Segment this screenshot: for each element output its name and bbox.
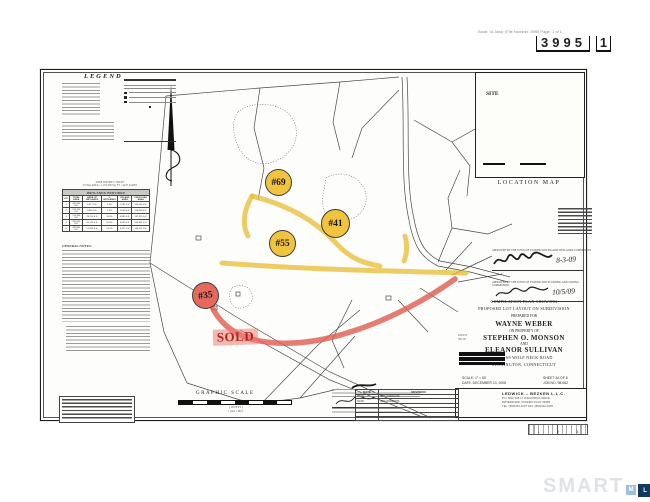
job-number: JOB NO. 98-062 [543,381,568,385]
graphic-scale-units: ( IN FEET ) 1 inch = 80 ft. [196,406,276,414]
legend-title: LEGEND [84,73,123,80]
legend-symbol-icon [124,101,127,104]
general-notes-text [62,250,150,322]
general-notes-title: GENERAL NOTES: [62,244,92,248]
approval-line-wetlands: APPROVED BY THE TOWN OF STONINGTON INLAN… [492,249,592,252]
received-stamp [558,208,592,234]
file-number-suffix: 1 [596,36,611,52]
lot-badge-41: #41 [321,209,350,238]
legend-entries [62,83,100,117]
table-row: 5192,861 S.F.27,850 S.F.14.4%4,957 S.F.1… [63,226,150,232]
graphic-scale-bar [178,400,292,405]
table-row [356,416,459,420]
approval-date-planning: 10/5/09 [552,286,575,297]
scan-ruler: 1 2 3 [528,424,588,435]
location-map-scalebar [483,163,505,165]
revision-table: DATE REVISION 1/5/09PER COMMENTS 3/4/09P… [355,389,459,421]
mls-m-icon: M [626,485,636,495]
scanned-survey-page: Book: 41 Map: (File Number: 3995 Page: 1… [0,0,650,502]
plan-title-2: PROPOSED LOT LAYOUT ON SUBDIVISION [464,306,584,311]
plan-title-1: COMPILATION PLAN SHOWING [464,299,584,304]
site-label: SITE [486,91,499,97]
location-map-caption: LOCATION MAP [475,180,583,186]
scale-note: SCALE: 1" = 80' [462,376,486,380]
legend-entries-2 [62,122,114,140]
wetlands-table: WETLANDS PROVIDED LOT TOTAL AREA AREA OF… [62,189,150,232]
sheet-number: SHEET 3A OF 8 [543,376,568,380]
recorder-note: Book: 41 Map: (File Number: 3995 Page: 1… [478,29,562,34]
legend-symbol-icon [124,96,127,99]
lot-badge-55: #55 [269,230,296,257]
lot-badge-69: #69 [265,169,292,196]
reference-numbers: #31933 S0118 [458,333,467,341]
surveyor-firm-box: LEDWICK – BEZKEN L.L.C. P.O. BOX 528 17 … [455,388,587,418]
legend-symbol-icon [124,92,127,95]
smart-wordmark: SMART [543,477,624,495]
zoning-note: ZONE DISTRICT "RR-80" TOTAL AREA = 1,074… [62,181,158,187]
general-notes-text-2 [66,326,150,352]
owner-name-1: STEPHEN O. MONSON [464,334,584,342]
recording-stamp-block [459,352,505,365]
approval-date-wetlands: 8-3-09 [556,254,577,264]
location-map-scalebar [520,163,546,165]
approval-line-planning: APPROVED BY THE TOWN OF STONINGTON PLANN… [492,281,592,287]
sold-label: SOLD [213,328,259,346]
graphic-scale-title: GRAPHIC SCALE [196,391,255,396]
date-note: DATE: DECEMBER 10, 2008 [462,381,506,385]
legend-symbol-box [124,79,176,142]
client-name: WAYNE WEBER [464,320,584,328]
smartmls-logo: SMART M L S [543,477,650,495]
mls-l-icon: L [638,484,650,497]
file-number: 3995 [536,36,590,52]
corner-certification-note [59,396,135,423]
on-property-of: ON PROPERTY OF [464,329,584,333]
firm-phone: TEL. (860)442-1207 FAX. (860)442-0295 [502,404,565,408]
file-number-stamp: 3995 1 [536,36,611,52]
prepared-for: PREPARED FOR [464,314,584,318]
